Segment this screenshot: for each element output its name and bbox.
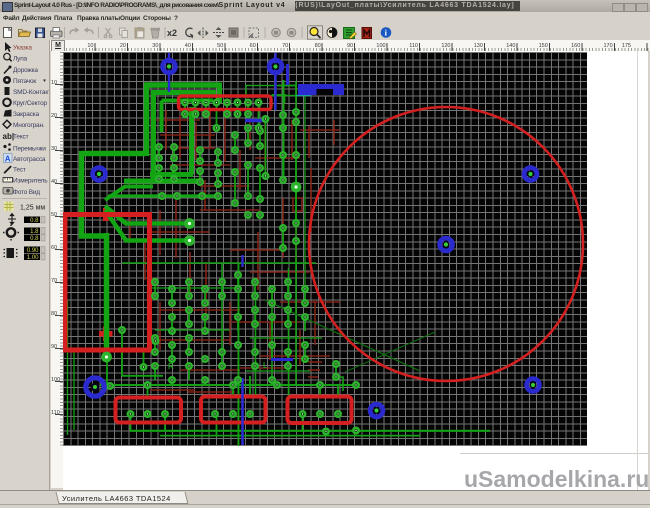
svg-text:R: R xyxy=(168,362,174,371)
svg-text:L: L xyxy=(263,361,268,370)
